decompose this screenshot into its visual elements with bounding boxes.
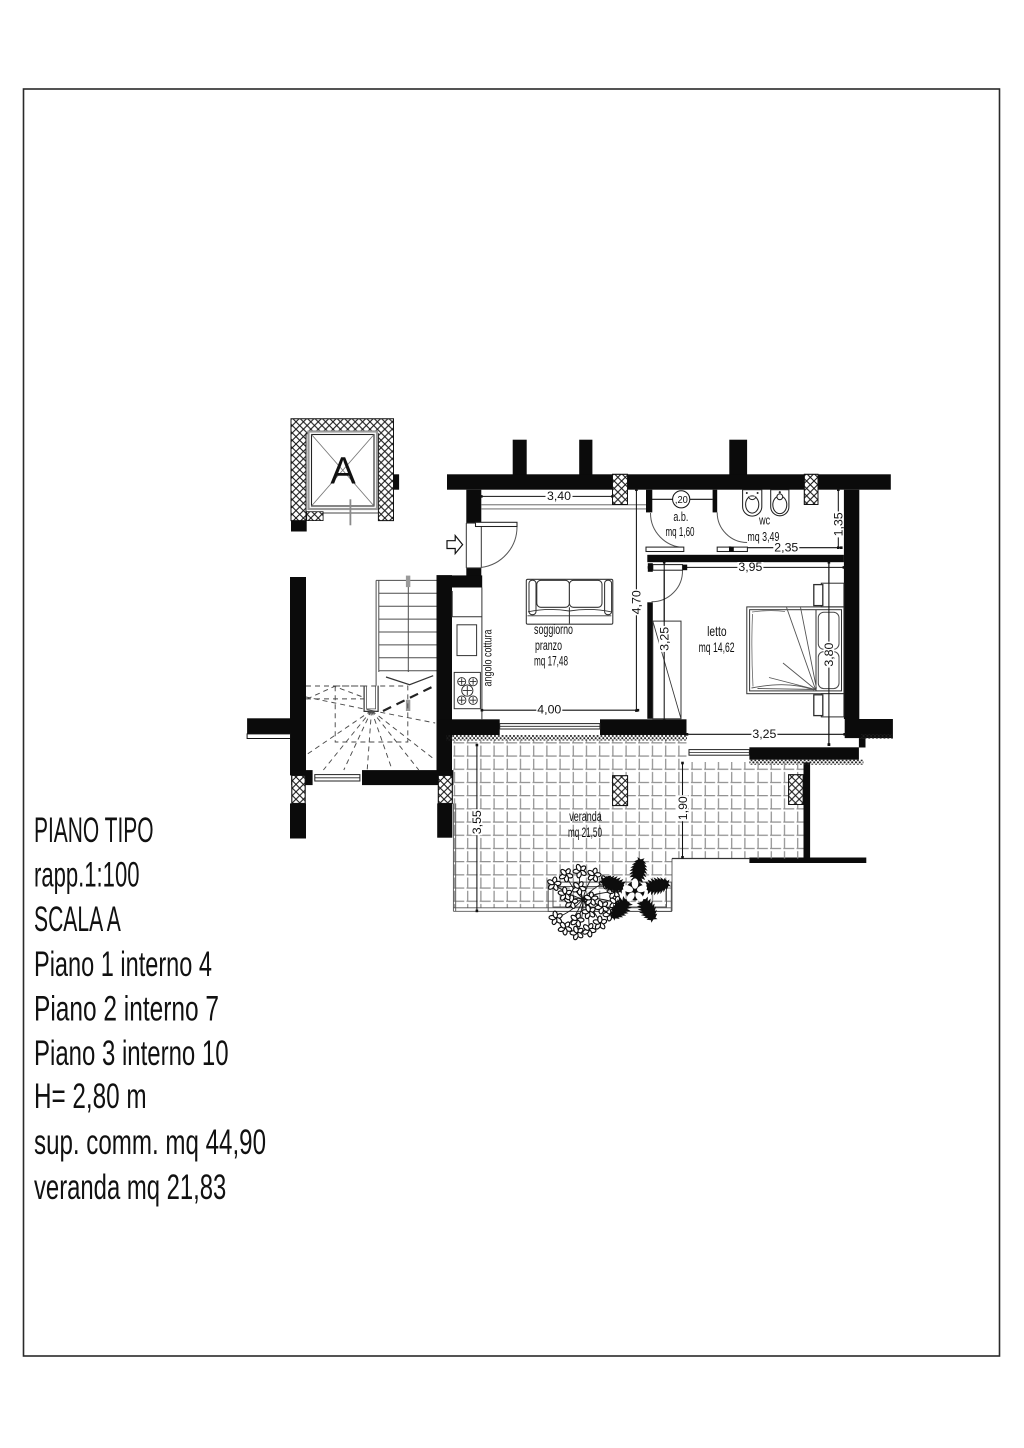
svg-text:mq 17,48: mq 17,48 xyxy=(534,652,568,668)
svg-text:veranda mq 21,83: veranda mq 21,83 xyxy=(34,1167,226,1207)
svg-text:1,35: 1,35 xyxy=(834,512,846,536)
svg-text:a.b.: a.b. xyxy=(673,510,688,524)
svg-text:rapp.1:100: rapp.1:100 xyxy=(34,855,140,895)
svg-text:,20: ,20 xyxy=(675,494,688,506)
svg-text:mq 3,49: mq 3,49 xyxy=(747,529,779,544)
svg-text:mq 14,62: mq 14,62 xyxy=(699,639,735,655)
svg-text:SCALA A: SCALA A xyxy=(34,899,121,939)
svg-text:sup. comm. mq 44,90: sup. comm. mq 44,90 xyxy=(34,1122,266,1162)
svg-text:letto: letto xyxy=(707,623,727,639)
svg-text:3,55: 3,55 xyxy=(472,810,484,834)
svg-text:Piano 1 interno 4: Piano 1 interno 4 xyxy=(34,944,212,984)
svg-text:H= 2,80 m: H= 2,80 m xyxy=(34,1076,147,1116)
svg-text:veranda: veranda xyxy=(569,809,602,824)
svg-text:1,90: 1,90 xyxy=(678,796,690,820)
svg-text:3,25: 3,25 xyxy=(752,729,776,741)
svg-text:4,00: 4,00 xyxy=(537,705,561,717)
svg-text:wc: wc xyxy=(758,514,770,528)
svg-text:Piano 2 interno 7: Piano 2 interno 7 xyxy=(34,988,219,1028)
svg-text:PIANO TIPO: PIANO TIPO xyxy=(34,810,154,850)
svg-text:pranzo: pranzo xyxy=(535,637,562,653)
svg-text:3,25: 3,25 xyxy=(660,627,672,651)
svg-text:Piano 3 interno 10: Piano 3 interno 10 xyxy=(34,1033,229,1073)
svg-text:3,95: 3,95 xyxy=(738,562,762,574)
svg-text:4,70: 4,70 xyxy=(632,590,644,614)
svg-text:3,80: 3,80 xyxy=(824,643,836,667)
svg-text:3,40: 3,40 xyxy=(547,491,571,503)
svg-text:angolo cottura: angolo cottura xyxy=(481,629,495,686)
svg-text:A: A xyxy=(330,451,356,493)
svg-text:mq 1,60: mq 1,60 xyxy=(666,524,695,539)
svg-text:mq 21,50: mq 21,50 xyxy=(568,825,602,840)
svg-text:soggiorno: soggiorno xyxy=(534,621,573,637)
